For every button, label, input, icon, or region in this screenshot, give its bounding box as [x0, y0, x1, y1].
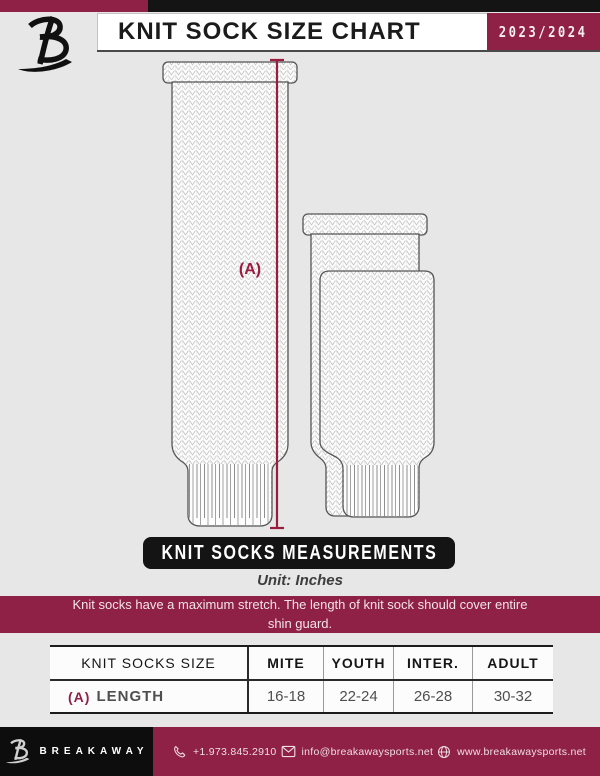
size-table: KNIT SOCKS SIZE MITE YOUTH INTER. ADULT …: [50, 645, 553, 714]
value-youth: 22-24: [323, 681, 393, 712]
row-label-prefix: (A): [68, 689, 90, 705]
footer-brand-logo: [4, 738, 32, 766]
sock-measurement-diagram: (A): [0, 0, 600, 540]
unit-note: Unit: Inches: [0, 572, 600, 589]
value-inter: 26-28: [393, 681, 472, 712]
footer-website[interactable]: www.breakawaysports.net: [437, 745, 586, 759]
footer-phone[interactable]: +1.973.845.2910: [173, 745, 277, 759]
footer-contacts: +1.973.845.2910 info@breakawaysports.net…: [153, 727, 600, 776]
col-header-adult: ADULT: [472, 647, 553, 679]
value-mite: 16-18: [247, 681, 323, 712]
col-header-mite: MITE: [247, 647, 323, 679]
col-header-youth: YOUTH: [323, 647, 393, 679]
envelope-icon: [281, 745, 296, 758]
row-label: LENGTH: [96, 688, 164, 705]
stretch-note-bar: Knit socks have a maximum stretch. The l…: [0, 596, 600, 633]
footer-brand-name: BREAKAWAY: [39, 746, 148, 757]
footer-email[interactable]: info@breakawaysports.net: [281, 745, 434, 758]
footer-email-text: info@breakawaysports.net: [302, 746, 434, 758]
size-table-header-row: KNIT SOCKS SIZE MITE YOUTH INTER. ADULT: [50, 647, 553, 681]
col-header-size: KNIT SOCKS SIZE: [50, 647, 247, 679]
footer-brand-box: BREAKAWAY: [0, 727, 153, 776]
globe-icon: [437, 745, 451, 759]
measurements-banner-text: KNIT SOCKS MEASUREMENTS: [161, 542, 437, 565]
row-label-cell: (A) LENGTH: [50, 681, 247, 712]
footer-phone-text: +1.973.845.2910: [193, 746, 277, 758]
phone-icon: [173, 745, 187, 759]
measure-label-a: (A): [239, 261, 261, 278]
stretch-note-text: Knit socks have a maximum stretch. The l…: [60, 596, 540, 632]
table-row-length: (A) LENGTH 16-18 22-24 26-28 30-32: [50, 681, 553, 712]
footer-website-text: www.breakawaysports.net: [457, 746, 586, 758]
value-adult: 30-32: [472, 681, 553, 712]
col-header-inter: INTER.: [393, 647, 472, 679]
footer: BREAKAWAY +1.973.845.2910 info@breakaway…: [0, 727, 600, 776]
measurements-banner: KNIT SOCKS MEASUREMENTS: [143, 537, 455, 569]
